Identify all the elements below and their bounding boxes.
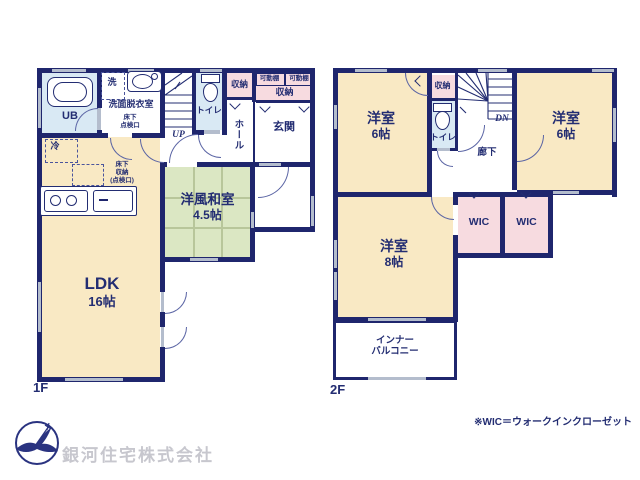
balcony-line1: インナー <box>336 335 454 346</box>
toilet-tank-icon <box>201 74 220 83</box>
door-panel <box>161 327 164 347</box>
window <box>613 108 616 142</box>
floor-label-2f: 2F <box>330 382 358 398</box>
fridge-label: 冷 <box>47 141 63 152</box>
door-arc <box>165 292 187 314</box>
burner-icon <box>50 195 61 206</box>
window <box>38 88 41 128</box>
window <box>38 282 41 332</box>
closet-wide-label: 収納 <box>256 87 313 98</box>
door-panel <box>204 130 220 134</box>
room-label-corridor: 廊下 <box>467 147 507 158</box>
door-panel <box>161 292 164 312</box>
hatch-label: 床下 点検口 <box>108 114 152 130</box>
wic-note: ※WIC＝ウォークインクローゼット <box>470 417 632 429</box>
window <box>52 69 86 72</box>
sink-icon <box>93 190 133 212</box>
wic-right-label: WIC <box>505 216 548 229</box>
window <box>190 258 218 261</box>
wall <box>197 162 255 167</box>
bedroom-right-size: 6帖 <box>522 127 610 141</box>
hatch-line1: 床下 <box>108 114 152 122</box>
floor-storage-line2: 収納 <box>100 169 144 177</box>
closet-label-1f: 収納 <box>226 79 253 89</box>
door-arc <box>198 135 221 158</box>
balcony-label: インナー バルコニー <box>336 335 454 358</box>
wall <box>160 257 165 292</box>
laundry-label: 洗 <box>103 77 121 88</box>
stairs-down-label: DN <box>490 114 514 124</box>
room-label-ldk: LDK 16帖 <box>52 274 152 310</box>
window <box>334 105 337 129</box>
shelf-left-label: 可動棚 <box>256 75 283 83</box>
tatami-line <box>165 227 250 229</box>
bedroom-main-size: 8帖 <box>338 255 450 269</box>
bedroom-left-size: 6帖 <box>338 127 424 141</box>
floor-storage-line3: (点検口) <box>100 177 144 185</box>
door-panel <box>259 163 281 166</box>
bathtub-inner-icon <box>53 82 87 102</box>
window <box>368 318 426 321</box>
wall <box>548 192 553 258</box>
burner-icon <box>66 195 77 206</box>
wall <box>457 253 553 258</box>
shelf-right-label: 可動棚 <box>285 75 313 83</box>
floorplan-canvas: UB 洗 洗面脱衣室 床下 点検口 トイレ UP 収納 可動棚 可動棚 収納 ホ… <box>0 0 640 480</box>
wall <box>37 133 108 138</box>
door-arc <box>437 151 453 167</box>
room-label-washroom: 洗面脱衣室 <box>98 99 164 110</box>
floor-storage-line1: 床下 <box>100 161 144 169</box>
wic-left-label: WIC <box>458 216 500 229</box>
window <box>251 212 254 228</box>
window <box>334 272 337 300</box>
room-label-japanese: 洋風和室 4.5帖 <box>165 192 250 223</box>
wall <box>225 97 253 100</box>
floor-label-1f: 1F <box>33 380 59 396</box>
staircase-1f <box>165 73 192 135</box>
window <box>592 69 614 72</box>
window <box>311 196 314 226</box>
room-label-bedroom-right: 洋室 6帖 <box>522 110 610 141</box>
doorway-chevron <box>259 101 270 112</box>
window <box>355 69 387 72</box>
company-name: 銀河住宅株式会社 <box>62 441 214 466</box>
ldk-name: LDK <box>52 274 152 294</box>
bedroom-right-name: 洋室 <box>522 110 610 127</box>
japanese-room-name: 洋風和室 <box>165 192 250 208</box>
bedroom-main-name: 洋室 <box>338 238 450 255</box>
window <box>65 378 123 381</box>
ldk-size: 16帖 <box>52 294 152 310</box>
stairs-up-label: UP <box>165 130 192 140</box>
wall <box>430 98 455 101</box>
wall <box>333 192 432 197</box>
room-label-hall: ホール <box>232 106 243 164</box>
bedroom-left-name: 洋室 <box>338 110 424 127</box>
window <box>334 240 337 268</box>
room-label-toilet-2f: トイレ <box>428 132 458 142</box>
window <box>200 69 222 72</box>
washbasin-bowl-icon <box>132 74 153 89</box>
wall <box>255 227 315 232</box>
doorway-chevron <box>298 101 309 112</box>
wall <box>453 235 458 322</box>
closet-label-2f: 収納 <box>429 81 456 91</box>
room-label-ub: UB <box>50 110 90 123</box>
window <box>553 191 579 194</box>
room-label-entrance: 玄関 <box>255 121 313 134</box>
hatch-line2: 点検口 <box>108 122 152 130</box>
room-label-bedroom-main: 洋室 8帖 <box>338 238 450 269</box>
wall <box>160 312 165 327</box>
door-arc <box>165 327 187 349</box>
floor-storage-label: 床下 収納 (点検口) <box>100 161 144 184</box>
japanese-room-size: 4.5帖 <box>165 208 250 222</box>
balcony-line2: バルコニー <box>336 346 454 357</box>
faucet-icon <box>151 73 158 80</box>
room-label-toilet-1f: トイレ <box>194 105 224 115</box>
wall <box>160 347 165 382</box>
door-arc <box>258 167 289 198</box>
company-logo-bird-icon <box>13 419 61 467</box>
wall <box>192 68 196 135</box>
window <box>478 69 507 72</box>
window <box>368 377 426 380</box>
sink-faucet-icon <box>99 199 108 201</box>
room-label-bedroom-left: 洋室 6帖 <box>338 110 424 141</box>
